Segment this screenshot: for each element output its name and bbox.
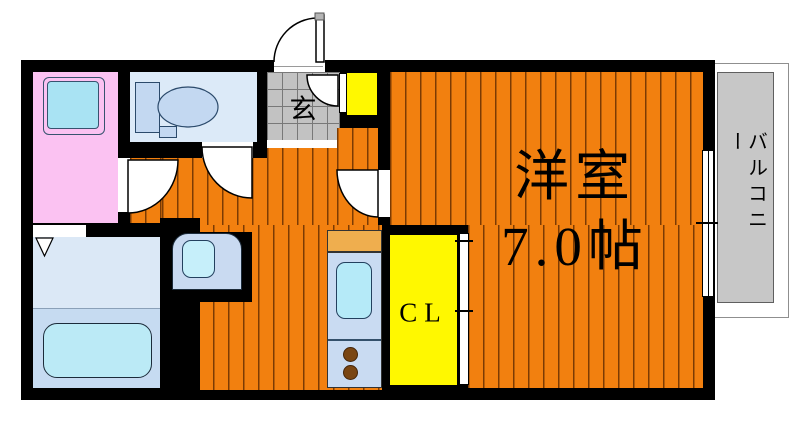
front-door-hinge-cap [315, 13, 324, 20]
front-door-leaf [316, 15, 324, 62]
western-door-swing [337, 170, 378, 217]
genkan-door-swing [307, 75, 338, 106]
toilet-door-swing [202, 147, 252, 198]
washroom-door-swing [128, 160, 178, 213]
floor-plan: バルコニー 玄 CL [0, 0, 800, 423]
front-door-arc [274, 18, 317, 62]
toilet-bowl [158, 87, 218, 127]
western-room-name: 洋室 [450, 142, 700, 212]
western-room-size: 7.0帖 [450, 212, 700, 282]
bathroom-folding-door-marker [36, 238, 53, 256]
western-room-label: 洋室 7.0帖 [450, 142, 700, 283]
